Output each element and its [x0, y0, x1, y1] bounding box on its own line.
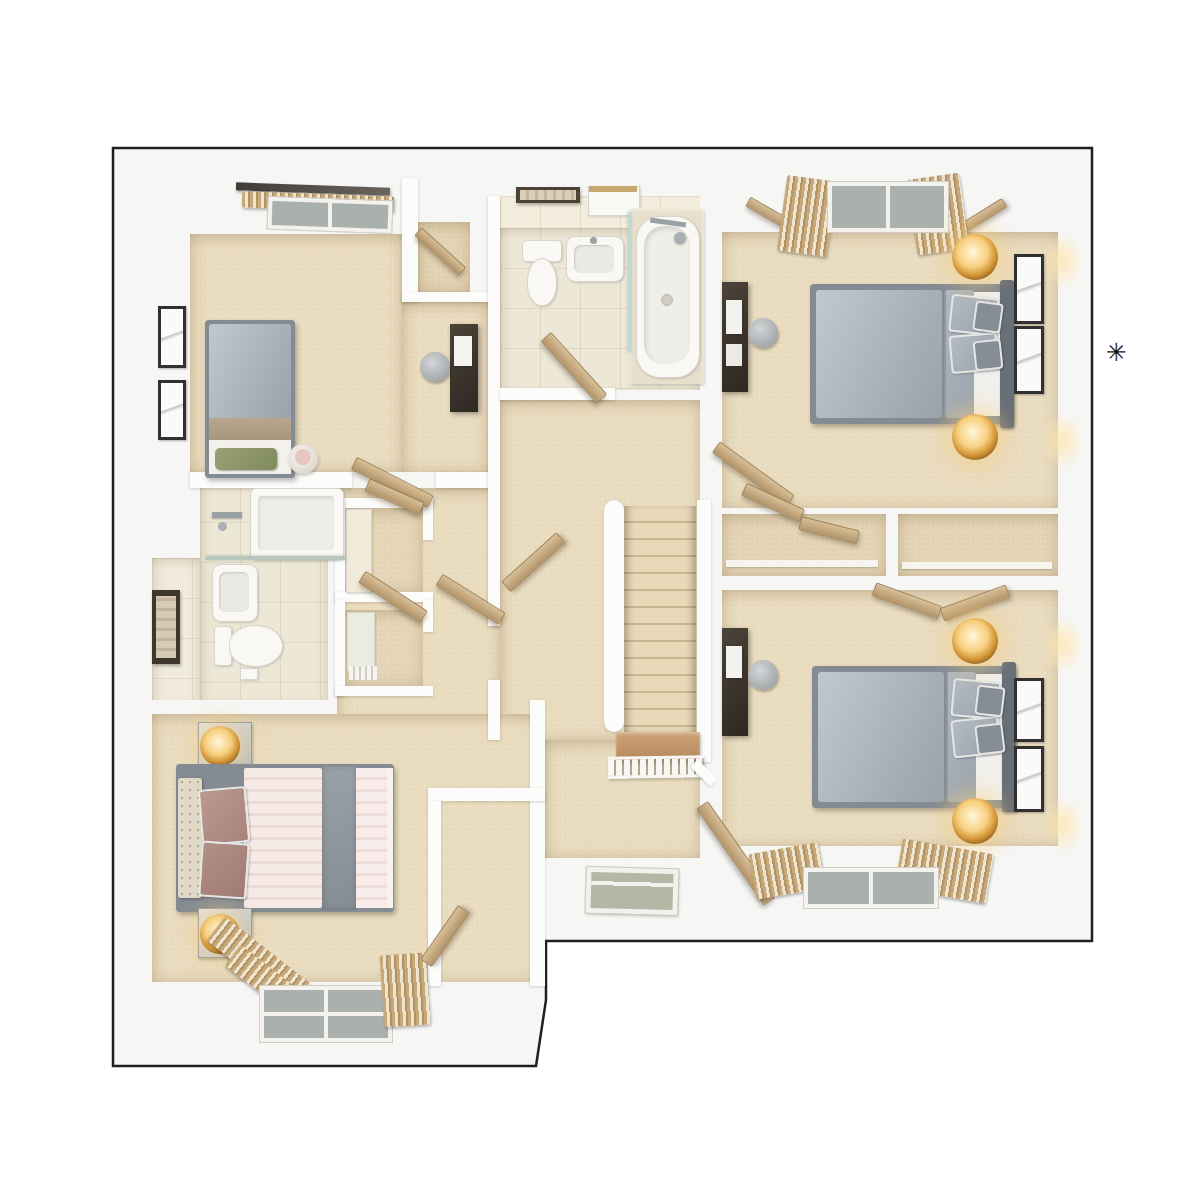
wall-light-glow: [1042, 232, 1084, 290]
window-panes: [267, 197, 392, 233]
desk: [722, 628, 748, 736]
desk-chair: [748, 318, 778, 348]
shower-control: [218, 522, 227, 531]
asterisk-annotation: ✳: [1106, 338, 1127, 367]
bedside-lamp: [200, 726, 240, 766]
bath-glass-screen: [628, 212, 631, 352]
pouf-pink-top: [295, 449, 311, 465]
wardrobe-shelf: [902, 562, 1052, 569]
picture-frame: [158, 380, 186, 440]
picture-frame: [1014, 254, 1044, 324]
wardrobe-shelf: [726, 560, 878, 567]
desk-monitor: [726, 300, 742, 334]
stair-spindle-rail: [608, 755, 704, 779]
bathtub-drain: [661, 294, 673, 306]
bathroom-left-wall: [488, 196, 500, 626]
toilet-bowl: [527, 258, 557, 306]
shower-tray-inner: [258, 496, 334, 550]
cushion: [974, 722, 1005, 755]
ensuite-toilet-bowl: [229, 625, 283, 667]
curtain: [380, 952, 431, 1027]
desk-chair: [748, 660, 778, 690]
bedside-lamp: [952, 234, 998, 280]
basin-tap: [590, 237, 597, 244]
cupboard-left-wall-2: [335, 600, 345, 696]
towel: [156, 596, 176, 658]
desk-monitor: [726, 646, 742, 678]
green-pillow: [215, 448, 277, 470]
headboard: [1000, 280, 1014, 428]
desk-chair: [420, 352, 450, 382]
cushion: [972, 300, 1004, 334]
desk: [722, 282, 748, 392]
stairwell-right-wall: [697, 500, 711, 762]
cushion: [974, 684, 1005, 717]
bedroom-top-left-bottom-wall-b: [436, 472, 488, 488]
pillow-mauve: [198, 840, 250, 899]
floor-plan-render: ✳: [0, 0, 1200, 1200]
towels: [520, 190, 576, 200]
stair-banister: [604, 500, 624, 732]
single-bed-duvet: [209, 324, 291, 420]
bedside-lamp: [952, 414, 998, 460]
cushion: [973, 339, 1004, 372]
window-panes: [804, 868, 938, 908]
hall-wall-stub: [488, 680, 500, 740]
wall-light-glow: [1042, 796, 1084, 854]
window-panes: [260, 986, 392, 1042]
picture-frame: [1014, 678, 1044, 742]
cabinet-wood-edge: [589, 186, 637, 192]
desk-papers: [454, 336, 472, 366]
double-bed-duvet-pink-foot: [356, 768, 388, 908]
closet-bottom-wall: [402, 292, 488, 302]
picture-frame: [1014, 326, 1044, 394]
wardrobe-alcove-wall-h: [428, 788, 545, 801]
landing-floor-window: [585, 867, 678, 915]
cupboard-bottom-wall: [335, 686, 433, 696]
bed-runner: [322, 766, 356, 910]
duvet-edge: [387, 768, 393, 908]
shower-mixer: [212, 512, 242, 518]
double-bed-duvet: [816, 290, 942, 418]
window-panes: [828, 182, 948, 232]
bedroom-top-left-partition-wall: [402, 178, 418, 302]
master-right-wall: [530, 700, 545, 986]
wall-light-glow: [1042, 412, 1084, 470]
double-bed-duvet-pink: [244, 768, 322, 908]
louvre-vent: [349, 666, 377, 680]
picture-frame: [158, 306, 186, 368]
shower-glass-rail: [206, 556, 346, 560]
double-bed-duvet: [818, 672, 944, 802]
bedside-lamp: [952, 618, 998, 664]
toilet-roll-holder: [240, 668, 258, 680]
basin-bowl: [574, 245, 614, 273]
wall-light-glow: [1042, 616, 1084, 674]
pillow-mauve: [198, 786, 251, 846]
bedside-lamp: [952, 798, 998, 844]
shower-head: [674, 232, 686, 244]
ensuite-basin-bowl: [219, 572, 249, 612]
picture-frame: [1014, 746, 1044, 812]
staircase: [624, 506, 696, 732]
water-tank-panel: [347, 612, 375, 672]
desk-papers: [726, 344, 742, 366]
single-bed-fold: [209, 418, 291, 440]
